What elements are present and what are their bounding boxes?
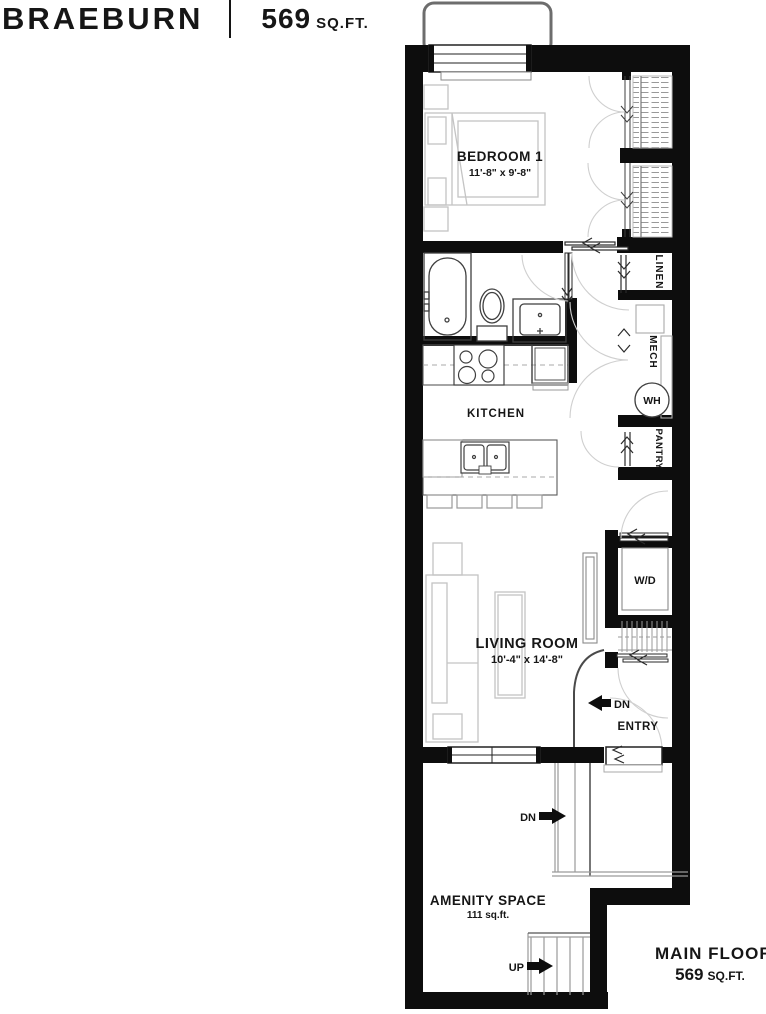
entry-dn-label: DN — [614, 699, 630, 711]
island-stools — [427, 495, 542, 508]
header: BRAEBURN 569 SQ.FT. — [2, 0, 369, 43]
floor-plan-page: BRAEBURN 569 SQ.FT. — [0, 0, 766, 1009]
wd-door — [620, 491, 668, 544]
washer-dryer-label: W/D — [634, 575, 655, 587]
mech-label: MECH — [647, 335, 658, 368]
living-room-dims: 10'-4" x 14'-8" — [491, 654, 563, 666]
pantry-door — [581, 431, 633, 467]
sofa — [426, 543, 478, 742]
fridge — [532, 345, 568, 390]
amenity-dn-arrow — [539, 808, 566, 824]
bedroom-label: BEDROOM 1 — [457, 149, 543, 164]
stair-sliding-door — [617, 650, 668, 665]
plan-area: 569 SQ.FT. — [261, 0, 368, 43]
header-divider — [229, 0, 231, 38]
plan-area-unit: SQ.FT. — [316, 5, 369, 43]
bathtub — [424, 253, 471, 340]
plan-area-value: 569 — [261, 0, 311, 38]
closet-door-swings — [588, 76, 625, 237]
front-door — [604, 746, 662, 772]
mech-doors — [570, 302, 630, 418]
linen-door — [572, 253, 630, 310]
amenity-dn-label: DN — [520, 812, 536, 824]
floor-area-value: 569 — [675, 965, 703, 985]
linen-label: LINEN — [653, 255, 664, 290]
living-room-window — [448, 747, 540, 763]
amenity-up-label: UP — [509, 962, 524, 974]
floor-area-unit: SQ.FT. — [708, 969, 745, 983]
pantry-label: PANTRY — [653, 429, 664, 470]
entry-dn-arrow — [588, 695, 611, 711]
bathroom-vanity-sink — [513, 299, 566, 342]
floor-label: MAIN FLOOR — [655, 944, 765, 964]
living-room-label: LIVING ROOM — [476, 636, 579, 652]
footer: MAIN FLOOR 569 SQ.FT. — [655, 944, 765, 985]
amenity-area: 111 sq.ft. — [467, 910, 509, 921]
bedroom-window — [429, 45, 531, 80]
floor-plan-drawing: BEDROOM 1 11'-8" x 9'-8" KITCHEN LIVING … — [0, 0, 766, 1009]
amenity-label: AMENITY SPACE — [430, 893, 546, 908]
tv-console — [583, 553, 597, 643]
entry-label: ENTRY — [617, 721, 658, 733]
bathroom-door — [522, 253, 572, 303]
bedroom-dims: 11'-8" x 9'-8" — [469, 167, 531, 179]
amenity-stairwell-down — [552, 763, 688, 876]
floor-area: 569 SQ.FT. — [675, 965, 745, 985]
kitchen-label: KITCHEN — [467, 408, 525, 420]
plan-title: BRAEBURN — [2, 0, 203, 38]
island-double-sink — [461, 442, 509, 474]
toilet — [477, 289, 507, 341]
water-heater-label: WH — [643, 395, 661, 407]
nightstands — [424, 85, 448, 231]
stove — [454, 345, 504, 385]
